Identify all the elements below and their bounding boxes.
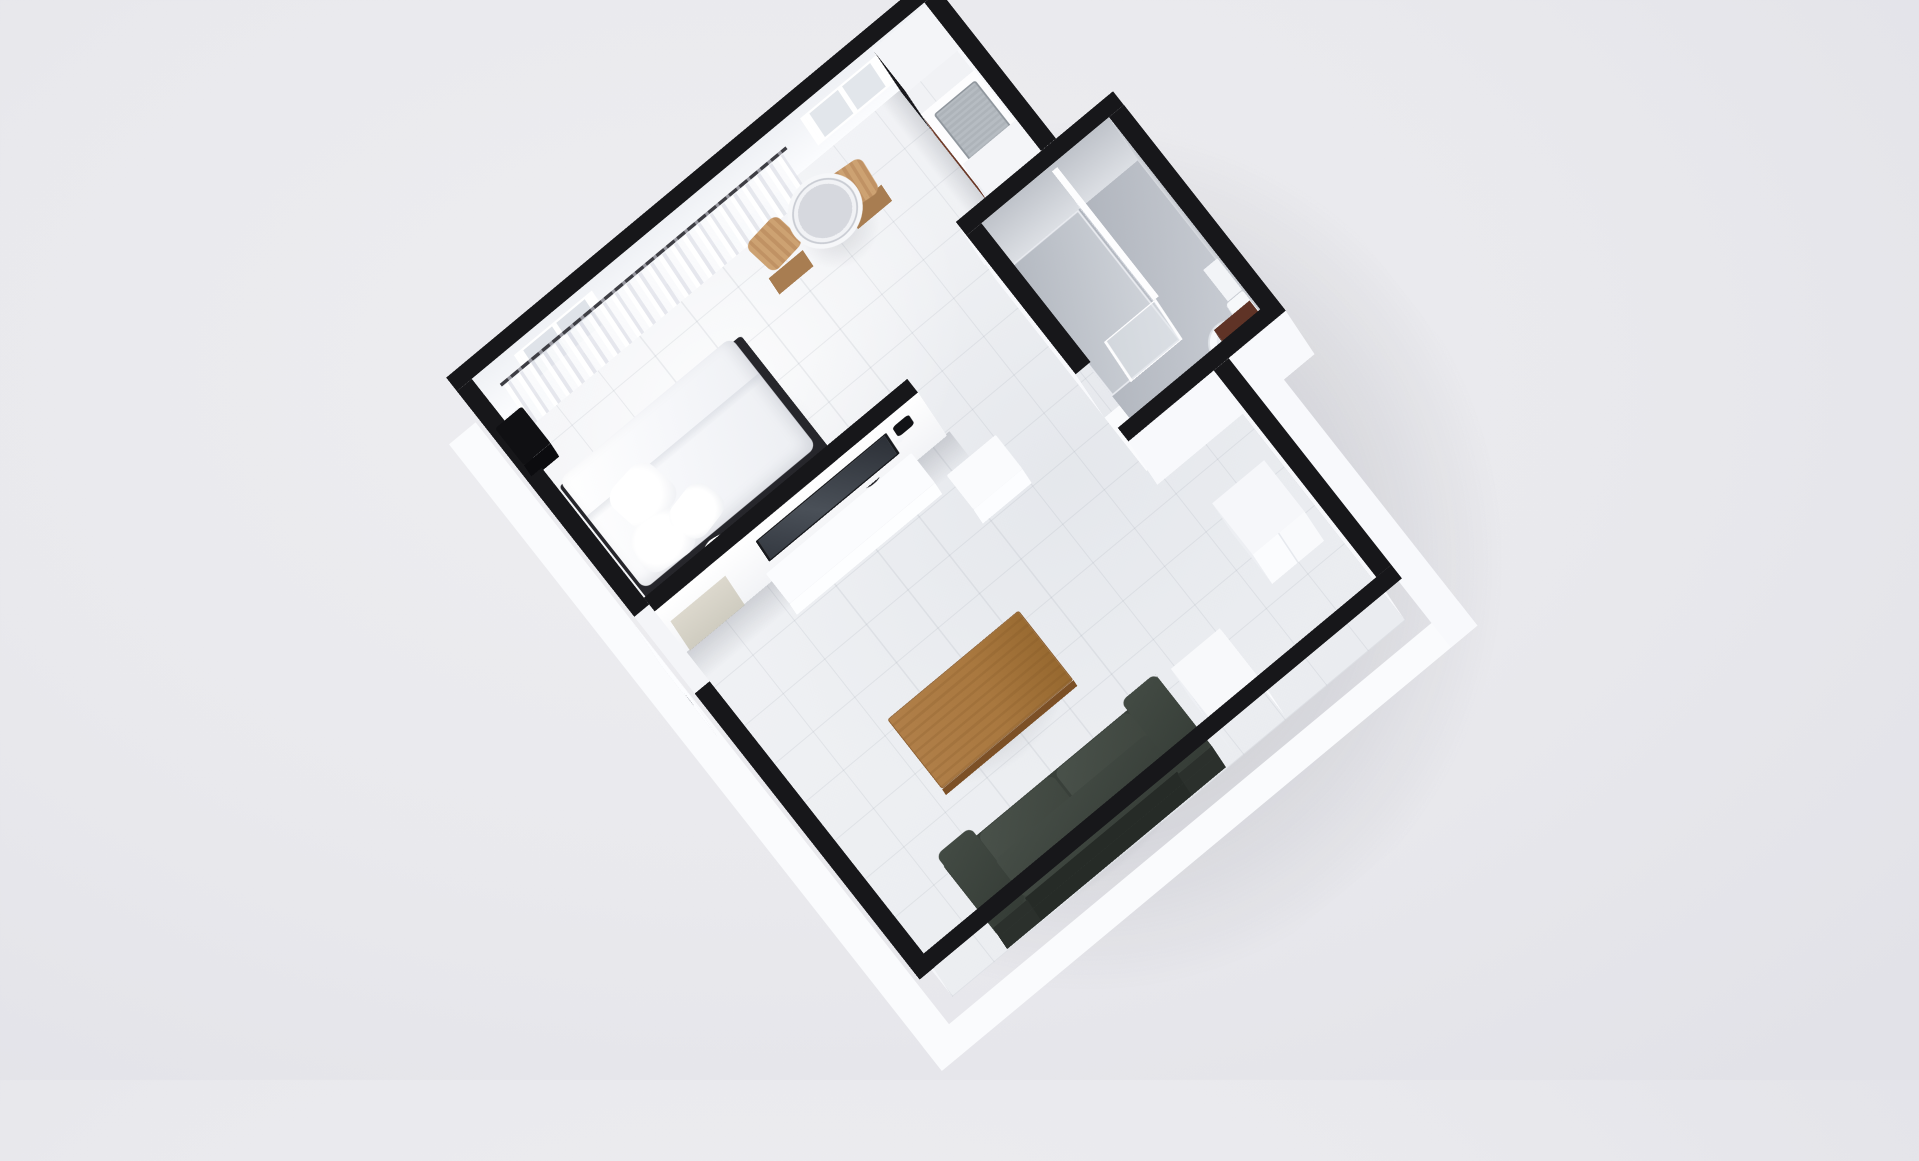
render-stage xyxy=(0,0,1919,1080)
